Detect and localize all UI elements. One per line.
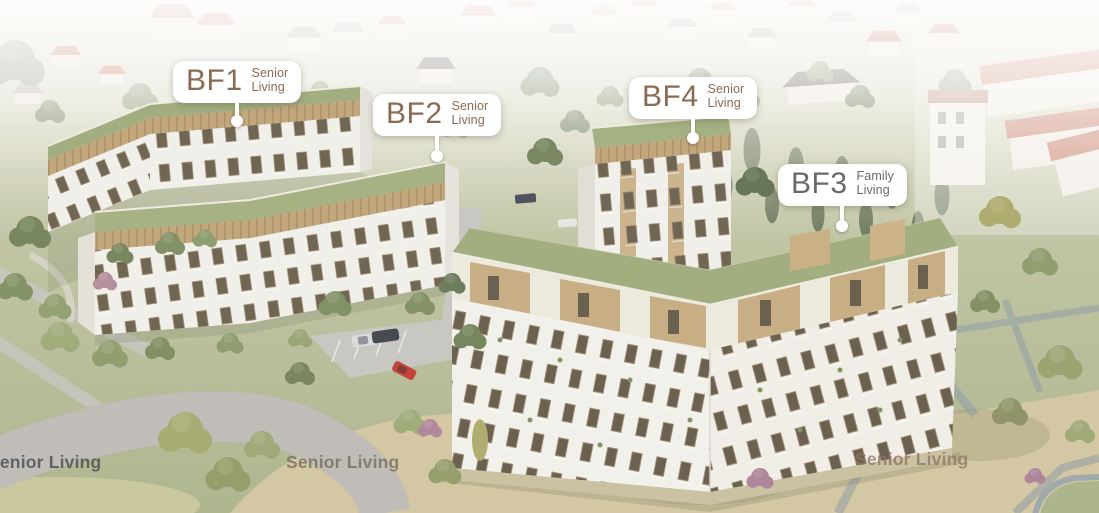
location-pin-dot-icon <box>687 132 699 144</box>
bf4-label-card[interactable]: BF4 Senior Living <box>629 77 757 119</box>
building-id: BF3 <box>791 168 848 200</box>
building-marker-bf3[interactable]: BF3 Family Living <box>778 164 907 232</box>
building-id: BF1 <box>186 65 243 97</box>
bf2-label-card[interactable]: BF2 Senior Living <box>373 94 501 136</box>
building-marker-bf4[interactable]: BF4 Senior Living <box>629 77 757 144</box>
location-pin-dot-icon <box>431 150 443 162</box>
building-marker-bf2[interactable]: BF2 Senior Living <box>373 94 501 162</box>
building-type: Senior Living <box>708 83 745 111</box>
location-pin-dot-icon <box>836 220 848 232</box>
location-pin-dot-icon <box>231 115 243 127</box>
aerial-site-rendering: BF1 Senior Living BF2 Senior Living BF4 … <box>0 0 1099 513</box>
bf3-label-card[interactable]: BF3 Family Living <box>778 164 907 206</box>
building-marker-bf1[interactable]: BF1 Senior Living <box>173 61 301 127</box>
building-type: Family Living <box>857 170 894 198</box>
building-id: BF4 <box>642 81 699 113</box>
location-pin-icon <box>435 136 439 151</box>
building-type: Senior Living <box>252 67 289 95</box>
color-grade-overlay <box>0 0 1099 513</box>
building-type: Senior Living <box>452 100 489 128</box>
location-pin-icon <box>691 119 695 133</box>
site-rendering-canvas <box>0 0 1099 513</box>
location-pin-icon <box>235 103 239 116</box>
building-id: BF2 <box>386 98 443 130</box>
bf1-label-card[interactable]: BF1 Senior Living <box>173 61 301 103</box>
location-pin-icon <box>840 206 844 221</box>
